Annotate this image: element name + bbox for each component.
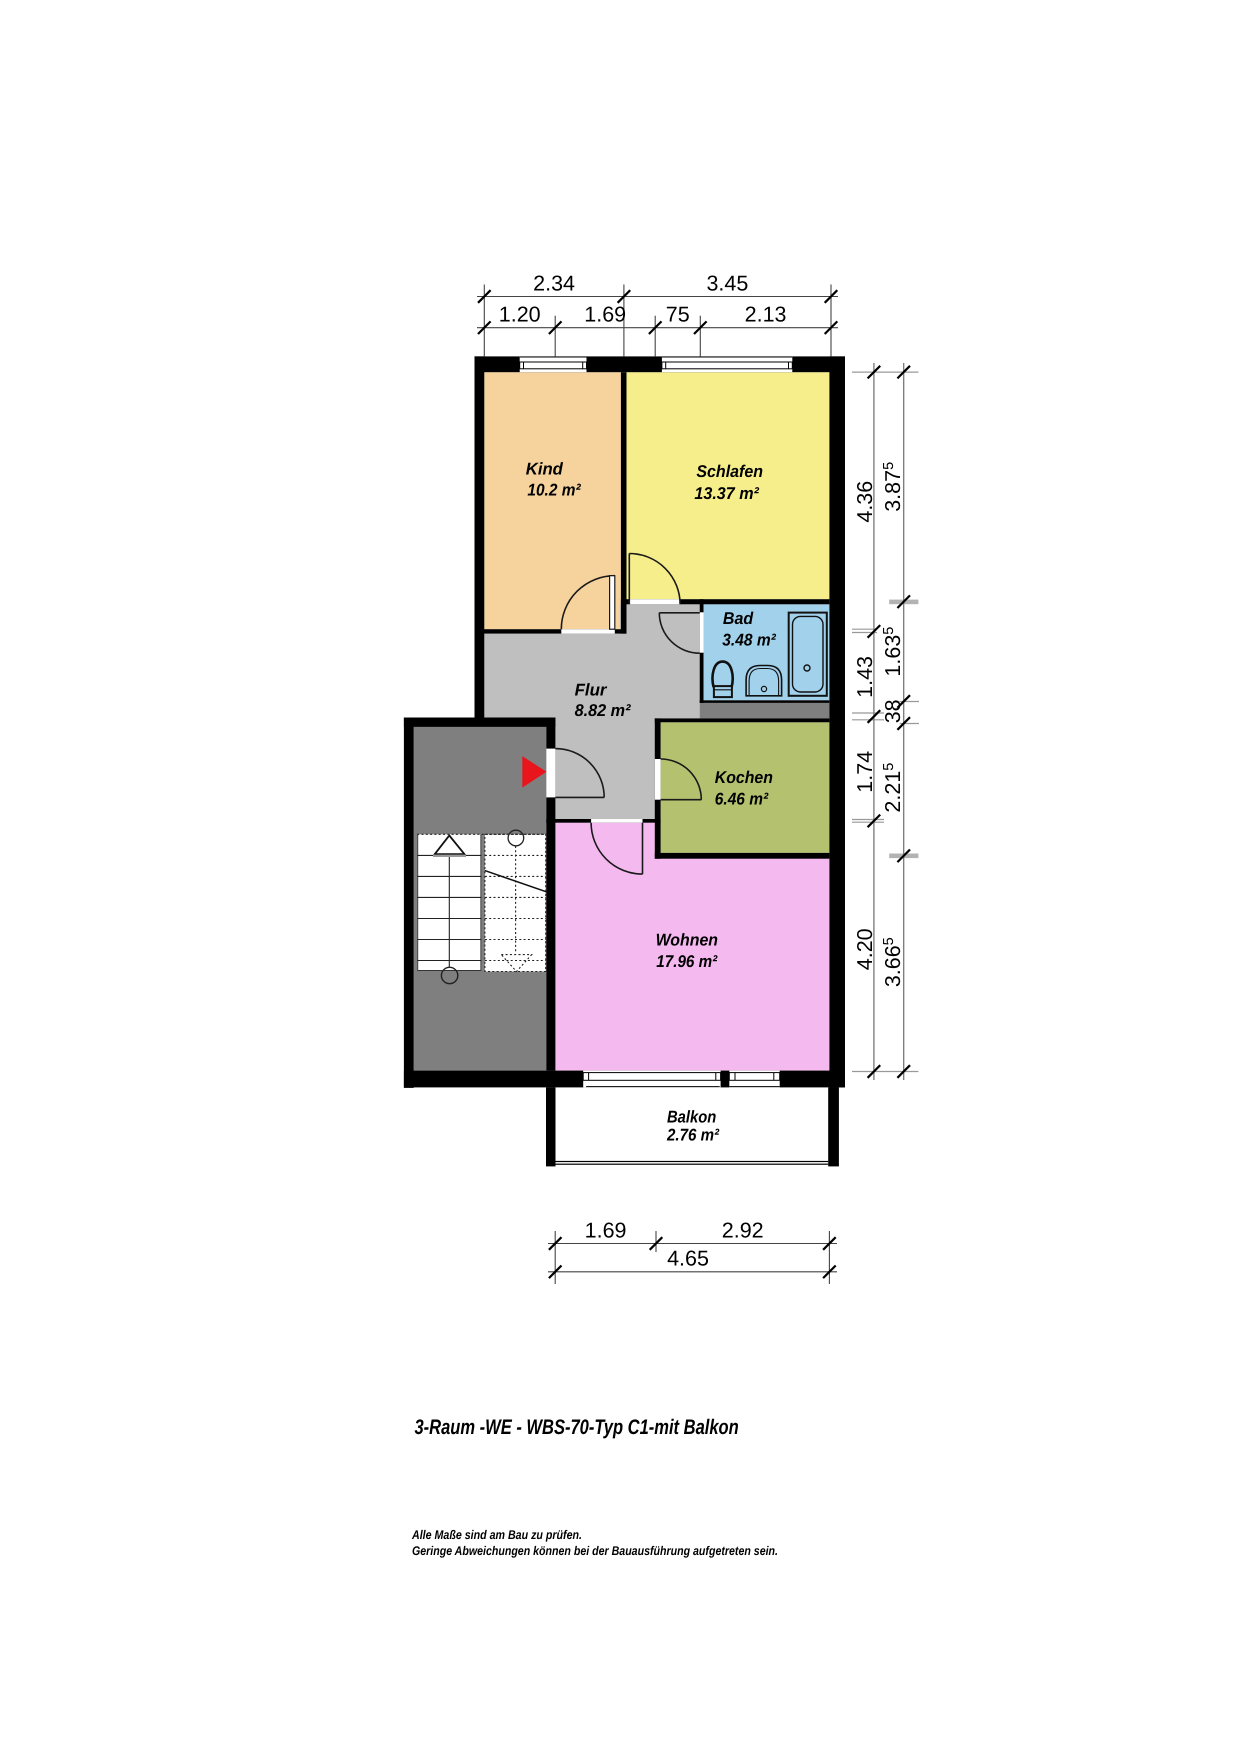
svg-text:75: 75 xyxy=(666,303,690,327)
svg-text:Flur: Flur xyxy=(575,681,608,700)
svg-text:1.20: 1.20 xyxy=(499,303,541,327)
svg-text:13.37 m²: 13.37 m² xyxy=(694,484,760,503)
svg-text:3.45: 3.45 xyxy=(706,271,748,295)
svg-text:Wohnen: Wohnen xyxy=(656,931,718,950)
svg-text:Kochen: Kochen xyxy=(715,768,773,787)
svg-text:10.2 m²: 10.2 m² xyxy=(527,481,581,500)
svg-text:1.43: 1.43 xyxy=(853,656,877,698)
svg-text:8.82 m²: 8.82 m² xyxy=(575,701,632,720)
svg-text:Schlafen: Schlafen xyxy=(696,462,763,481)
svg-text:6.46 m²: 6.46 m² xyxy=(715,790,770,809)
svg-text:Balkon: Balkon xyxy=(667,1108,716,1127)
svg-text:4.36: 4.36 xyxy=(853,481,877,523)
svg-text:2.34: 2.34 xyxy=(533,271,575,295)
svg-text:4.20: 4.20 xyxy=(853,928,877,970)
svg-text:Geringe Abweichungen können be: Geringe Abweichungen können bei der Baua… xyxy=(412,1544,778,1558)
svg-text:Alle Maße sind am Bau zu prüfe: Alle Maße sind am Bau zu prüfen. xyxy=(411,1528,582,1542)
svg-text:4.65: 4.65 xyxy=(667,1247,709,1271)
svg-text:1.69: 1.69 xyxy=(584,303,626,327)
svg-text:Bad: Bad xyxy=(723,609,754,628)
svg-text:2.76 m²: 2.76 m² xyxy=(666,1126,720,1145)
svg-text:Kind: Kind xyxy=(526,460,564,479)
svg-text:2.13: 2.13 xyxy=(745,303,787,327)
svg-text:3.48 m²: 3.48 m² xyxy=(722,631,777,650)
svg-text:1.69: 1.69 xyxy=(585,1218,627,1242)
svg-text:3-Raum -WE - WBS-70-Typ C1-mit: 3-Raum -WE - WBS-70-Typ C1-mit Balkon xyxy=(415,1416,739,1439)
svg-text:17.96 m²: 17.96 m² xyxy=(656,952,718,971)
svg-text:2.92: 2.92 xyxy=(722,1218,764,1242)
svg-text:38: 38 xyxy=(881,699,905,723)
svg-text:1.74: 1.74 xyxy=(853,751,877,793)
